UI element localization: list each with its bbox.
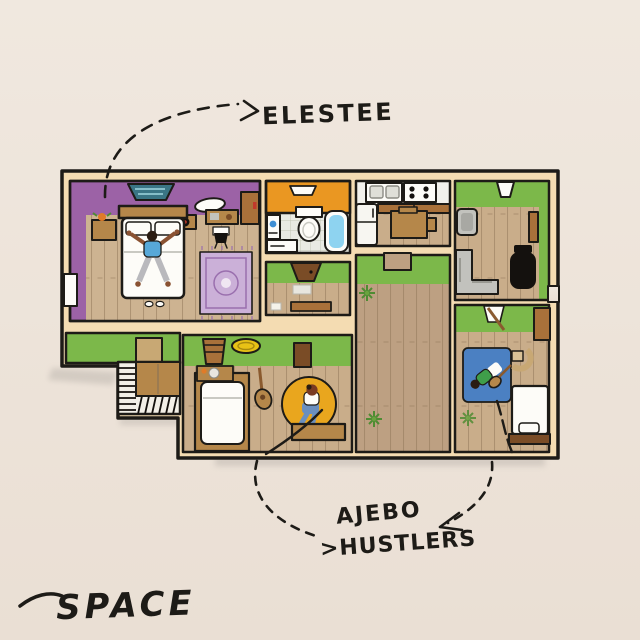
album-cover: ELESTEE AJEBO >HUSTLERS SPACE [0,0,640,640]
tv-icon [128,184,174,200]
floorplan [62,171,559,458]
armchair-icon [457,209,477,235]
room-living [455,181,559,302]
planter-pot-icon [203,339,225,364]
room-bedroom-3 [455,305,550,452]
window-opening [548,286,559,302]
living-green-wall-right [539,181,549,300]
shelf-icon [290,186,316,195]
kitchen-sink-icon [366,183,402,202]
toilet-icon [296,207,322,241]
slipper-left [145,301,153,306]
wardrobe-icon [241,192,259,224]
bed-with-person [119,206,187,307]
wardrobe-icon [534,308,550,340]
stair-landing-door [136,338,162,364]
album-art-canvas: ELESTEE AJEBO >HUSTLERS SPACE [0,0,640,640]
shelf-panel-icon [529,212,538,242]
yellow-dish-icon [232,339,260,353]
bed-icon [509,386,550,444]
room-main-bedroom [64,181,260,321]
single-bed-icon [195,366,249,451]
shoe-box-icon [271,303,281,310]
fridge-icon [356,204,377,245]
hallway-door-notch [384,253,411,270]
low-table-icon [292,424,345,440]
desk-chair-icon [512,350,531,369]
slipper-right [156,301,164,306]
room-hallway [356,253,450,452]
room-bathroom [266,181,350,253]
bench-icon [291,302,331,311]
bathtub-icon [325,211,348,252]
album-title-label: SPACE [55,583,196,628]
room-bedroom-2 [183,335,352,454]
planter-pot-icon [294,343,311,367]
living-door-opening [497,182,514,197]
room-entry-hall [266,262,350,315]
room-kitchen [356,181,450,246]
washer-icon [267,240,297,252]
sink-icon [267,215,280,239]
headboard [119,206,187,218]
artist-top-label: ELESTEE [262,98,395,131]
stove-icon [404,183,436,202]
bedroom-door-opening [64,274,77,306]
bedroom-rug [200,246,252,320]
doormat-icon [293,285,311,294]
